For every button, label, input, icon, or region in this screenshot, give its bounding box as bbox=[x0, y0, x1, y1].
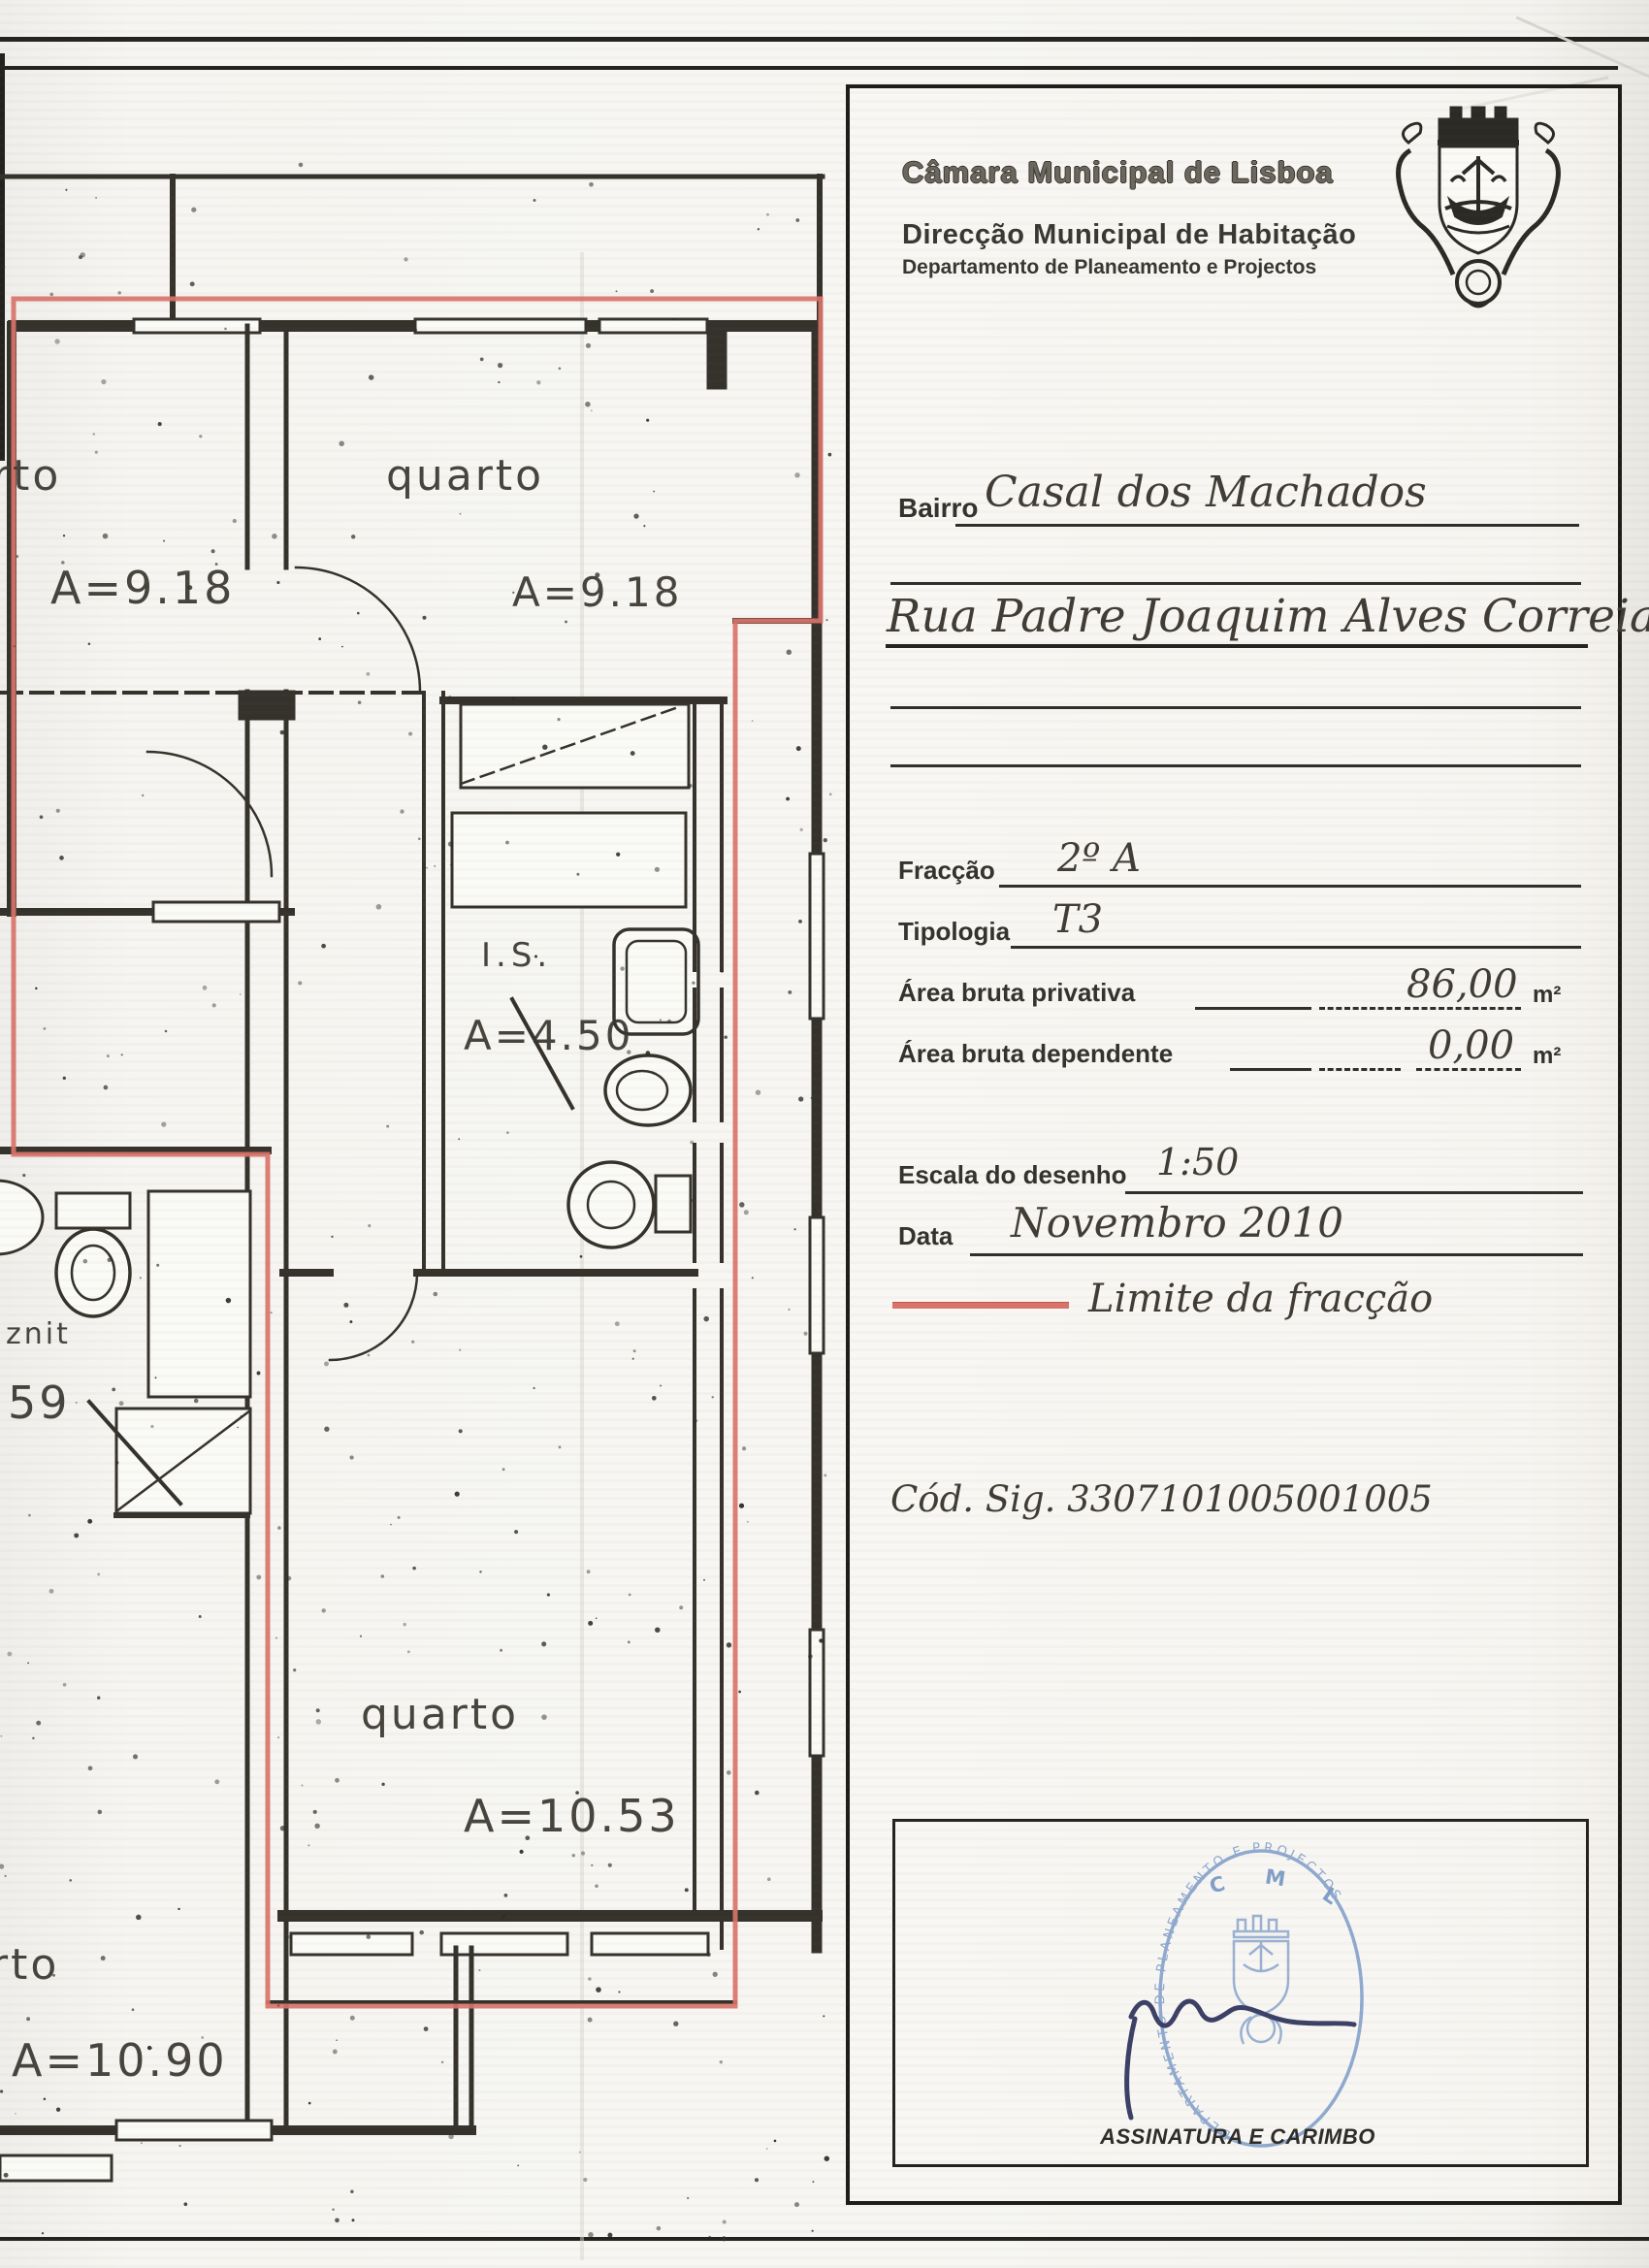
address-blank-line-1 bbox=[890, 582, 1581, 585]
room-label-rto-top: rto bbox=[0, 451, 61, 501]
area-dependente-unit: m² bbox=[1533, 1043, 1561, 1070]
fraccao-label: Fracção bbox=[898, 856, 995, 886]
tipologia-value: T3 bbox=[1052, 897, 1103, 942]
data-label: Data bbox=[898, 1221, 953, 1251]
address-value: Rua Padre Joaquim Alves Correia, nº 6 bbox=[887, 590, 1649, 643]
area-dependente-label: Área bruta dependente bbox=[898, 1039, 1173, 1069]
area-dependente-value: 0,00 bbox=[1428, 1023, 1514, 1068]
address-blank-line-2 bbox=[890, 706, 1581, 709]
room-area-is: A=4.50 bbox=[464, 1012, 633, 1059]
data-underline bbox=[970, 1253, 1583, 1256]
room-area-rto-bottom: A=10.90 bbox=[12, 2034, 228, 2087]
area-privativa-label: Área bruta privativa bbox=[898, 978, 1135, 1008]
escala-underline bbox=[1125, 1191, 1583, 1194]
address-blank-line-3 bbox=[890, 764, 1581, 767]
bairro-underline bbox=[955, 524, 1579, 527]
area-privativa-dashes bbox=[1319, 1007, 1401, 1010]
fraccao-value: 2º A bbox=[1057, 836, 1141, 881]
data-value: Novembro 2010 bbox=[1011, 1199, 1343, 1247]
area-privativa-value: 86,00 bbox=[1406, 962, 1518, 1007]
direction-title: Direcção Municipal de Habitação bbox=[902, 219, 1356, 251]
room-area-rto-top: A=9.18 bbox=[50, 562, 235, 614]
room-area-znit-partial: 59 bbox=[8, 1377, 71, 1429]
bairro-label: Bairro bbox=[898, 493, 978, 524]
tipologia-underline bbox=[1011, 946, 1581, 949]
room-area-quarto-bottom: A=10.53 bbox=[464, 1790, 680, 1842]
area-dependente-value-underline bbox=[1416, 1068, 1521, 1071]
room-label-quarto-bottom: quarto bbox=[361, 1690, 519, 1739]
scanned-document-page: { "page": { "accent_red": "#d9736a", "st… bbox=[0, 0, 1649, 2268]
signature-caption: ASSINATURA E CARIMBO bbox=[892, 2124, 1583, 2150]
area-privativa-line bbox=[1195, 1007, 1311, 1010]
bairro-value: Casal dos Machados bbox=[985, 468, 1427, 517]
tipologia-label: Tipologia bbox=[898, 917, 1010, 947]
room-label-is: I.S. bbox=[481, 936, 552, 975]
department-title: Departamento de Planeamento e Projectos bbox=[902, 256, 1316, 279]
fraction-limit-legend-line bbox=[892, 1302, 1069, 1309]
area-dependente-dashes bbox=[1319, 1068, 1401, 1071]
lisbon-coat-of-arms-icon bbox=[1381, 92, 1575, 330]
cod-sig-value: Cód. Sig. 3307101005001005 bbox=[890, 1478, 1433, 1520]
handwritten-signature-tail bbox=[1127, 2019, 1135, 2118]
area-privativa-unit: m² bbox=[1533, 982, 1561, 1009]
floor-plan-drawing: rto A=9.18 quarto A=9.18 I.S. A=4.50 zni… bbox=[0, 0, 844, 2268]
org-title: Câmara Municipal de Lisboa bbox=[902, 155, 1334, 190]
address-underline bbox=[886, 644, 1588, 648]
cml-stamp: C M L DEPARTAMENTO DE PLANEAMENTO E PROJ… bbox=[892, 1819, 1583, 2161]
room-label-znit-partial: znit bbox=[6, 1317, 71, 1351]
fraccao-underline bbox=[999, 885, 1581, 888]
room-label-quarto-top: quarto bbox=[386, 451, 544, 501]
room-label-rto-bottom: rto bbox=[0, 1940, 59, 1990]
fraction-limit-legend-label: Limite da fracção bbox=[1088, 1277, 1433, 1321]
fraction-limit-red-outline bbox=[14, 299, 821, 2006]
area-dependente-line bbox=[1230, 1068, 1311, 1071]
stamp-mini-coat-of-arms bbox=[1234, 1916, 1288, 2044]
area-privativa-value-underline bbox=[1405, 1007, 1521, 1010]
escala-value: 1:50 bbox=[1156, 1141, 1239, 1183]
escala-label: Escala do desenho bbox=[898, 1160, 1127, 1190]
